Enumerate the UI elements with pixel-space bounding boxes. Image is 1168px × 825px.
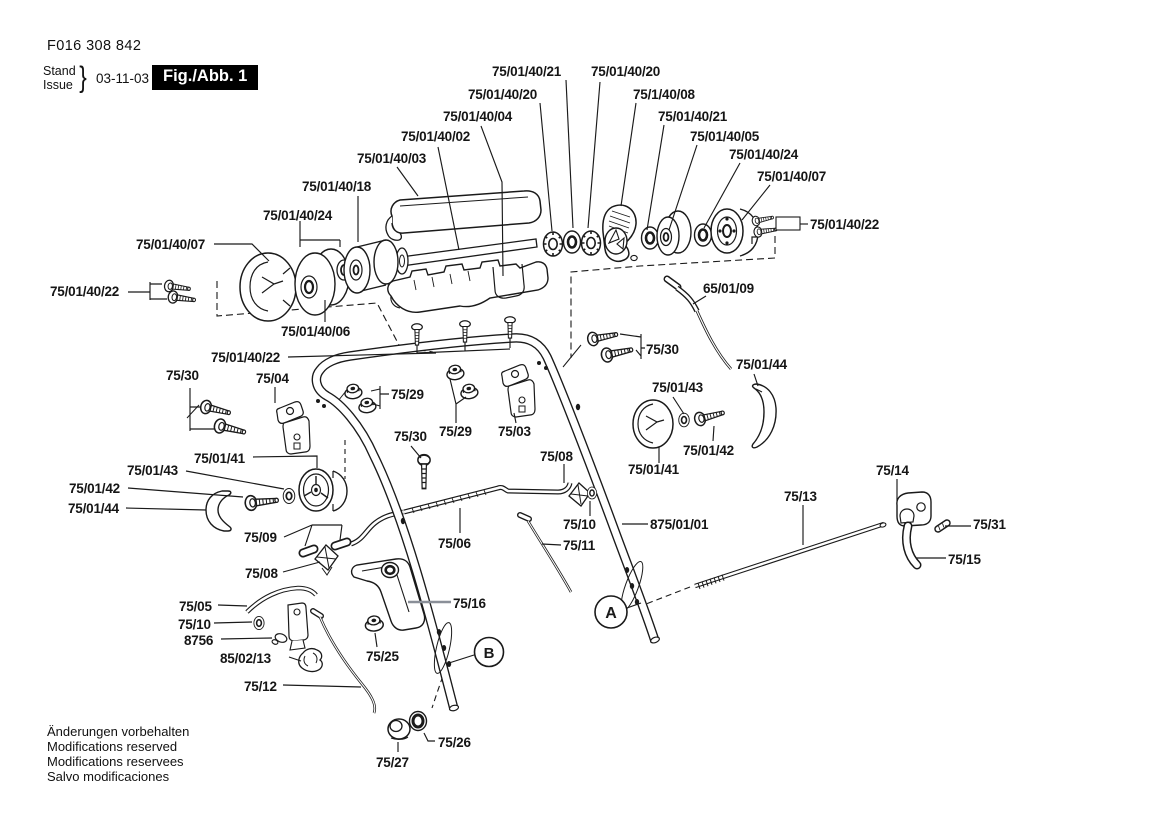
part-label: 75/01/42 — [683, 443, 734, 458]
issue-label: Issue — [43, 78, 76, 92]
part-label: 75/10 — [563, 517, 596, 532]
part-label: 75/01/40/24 — [263, 208, 332, 223]
part-label: 75/29 — [439, 424, 472, 439]
part-label: 75/04 — [256, 371, 289, 386]
part-label: 75/11 — [563, 538, 595, 553]
part-label: 75/01/40/24 — [729, 147, 798, 162]
part-label: 75/03 — [498, 424, 531, 439]
part-label: 75/14 — [876, 463, 909, 478]
part-label: 75/13 — [784, 489, 817, 504]
document-number: F016 308 842 — [47, 38, 141, 54]
part-label: 75/01/40/03 — [357, 151, 426, 166]
roller-assembly — [164, 191, 800, 321]
part-label: 75/15 — [948, 552, 981, 567]
part-label: 75/01/41 — [628, 462, 679, 477]
part-label: 75/01/44 — [68, 501, 119, 516]
part-label: 75/30 — [166, 368, 199, 383]
parts-diagram-page: A B F016 308 842 Stand Issue } 03-11-03 … — [0, 0, 1168, 825]
part-label: 75/12 — [244, 679, 277, 694]
stand-issue-label: Stand Issue — [43, 64, 76, 92]
part-label: 75/01/40/04 — [443, 109, 512, 124]
part-label: 75/08 — [540, 449, 573, 464]
part-label: 75/1/40/08 — [633, 87, 695, 102]
part-label: 75/01/40/22 — [810, 217, 879, 232]
part-label: 75/05 — [179, 599, 212, 614]
part-label: 75/01/40/20 — [468, 87, 537, 102]
part-label: 75/01/40/07 — [136, 237, 205, 252]
part-label: 75/01/40/06 — [281, 324, 350, 339]
part-label: 875/01/01 — [650, 517, 708, 532]
part-label: 75/30 — [394, 429, 427, 444]
part-label: 75/06 — [438, 536, 471, 551]
part-label: 75/30 — [646, 342, 679, 357]
part-label: 75/08 — [245, 566, 278, 581]
part-label: 75/01/43 — [652, 380, 703, 395]
part-label: 75/01/40/21 — [492, 64, 561, 79]
view-marker-b: B — [475, 638, 504, 667]
rod-75-06 — [404, 483, 570, 513]
notice-line-es: Salvo modificaciones — [47, 769, 189, 784]
exploded-diagram: A B — [0, 0, 1168, 825]
figure-badge: Fig./Abb. 1 — [152, 65, 258, 90]
part-label: 75/01/40/22 — [50, 284, 119, 299]
part-label: 65/01/09 — [703, 281, 754, 296]
part-label: 85/02/13 — [220, 651, 271, 666]
notice-line-fr: Modifications reservees — [47, 754, 189, 769]
part-label: 75/16 — [453, 596, 486, 611]
part-label: 75/31 — [973, 517, 1006, 532]
issue-date: 03-11-03 — [96, 71, 149, 86]
part-label: 75/01/40/21 — [658, 109, 727, 124]
part-label: 75/10 — [178, 617, 211, 632]
stand-label: Stand — [43, 64, 76, 78]
notice-line-en: Modifications reserved — [47, 739, 189, 754]
brace-glyph: } — [79, 61, 87, 95]
part-label: 75/01/40/20 — [591, 64, 660, 79]
svg-text:B: B — [484, 645, 495, 662]
notice-line-de: Änderungen vorbehalten — [47, 724, 189, 739]
part-label: 75/29 — [391, 387, 424, 402]
part-label: 75/27 — [376, 755, 409, 770]
part-label: 75/01/42 — [69, 481, 120, 496]
part-label: 75/01/40/18 — [302, 179, 371, 194]
part-label: 75/01/40/22 — [211, 350, 280, 365]
part-label: 75/01/44 — [736, 357, 787, 372]
modifications-notice: Änderungen vorbehalten Modifications res… — [47, 724, 189, 784]
svg-text:A: A — [605, 605, 617, 622]
part-label: 75/01/41 — [194, 451, 245, 466]
part-label: 75/25 — [366, 649, 399, 664]
rod-75-13 — [695, 522, 886, 589]
cable-guide-75-09 — [303, 512, 403, 553]
trigger-group — [897, 492, 947, 565]
part-label: 75/01/43 — [127, 463, 178, 478]
part-label: 75/01/40/02 — [401, 129, 470, 144]
part-label: 8756 — [184, 633, 213, 648]
part-label: 75/01/40/05 — [690, 129, 759, 144]
part-label: 75/01/40/07 — [757, 169, 826, 184]
bottom-fasteners — [388, 712, 427, 740]
view-marker-a: A — [595, 596, 627, 628]
part-label: 75/26 — [438, 735, 471, 750]
part-label: 75/09 — [244, 530, 277, 545]
